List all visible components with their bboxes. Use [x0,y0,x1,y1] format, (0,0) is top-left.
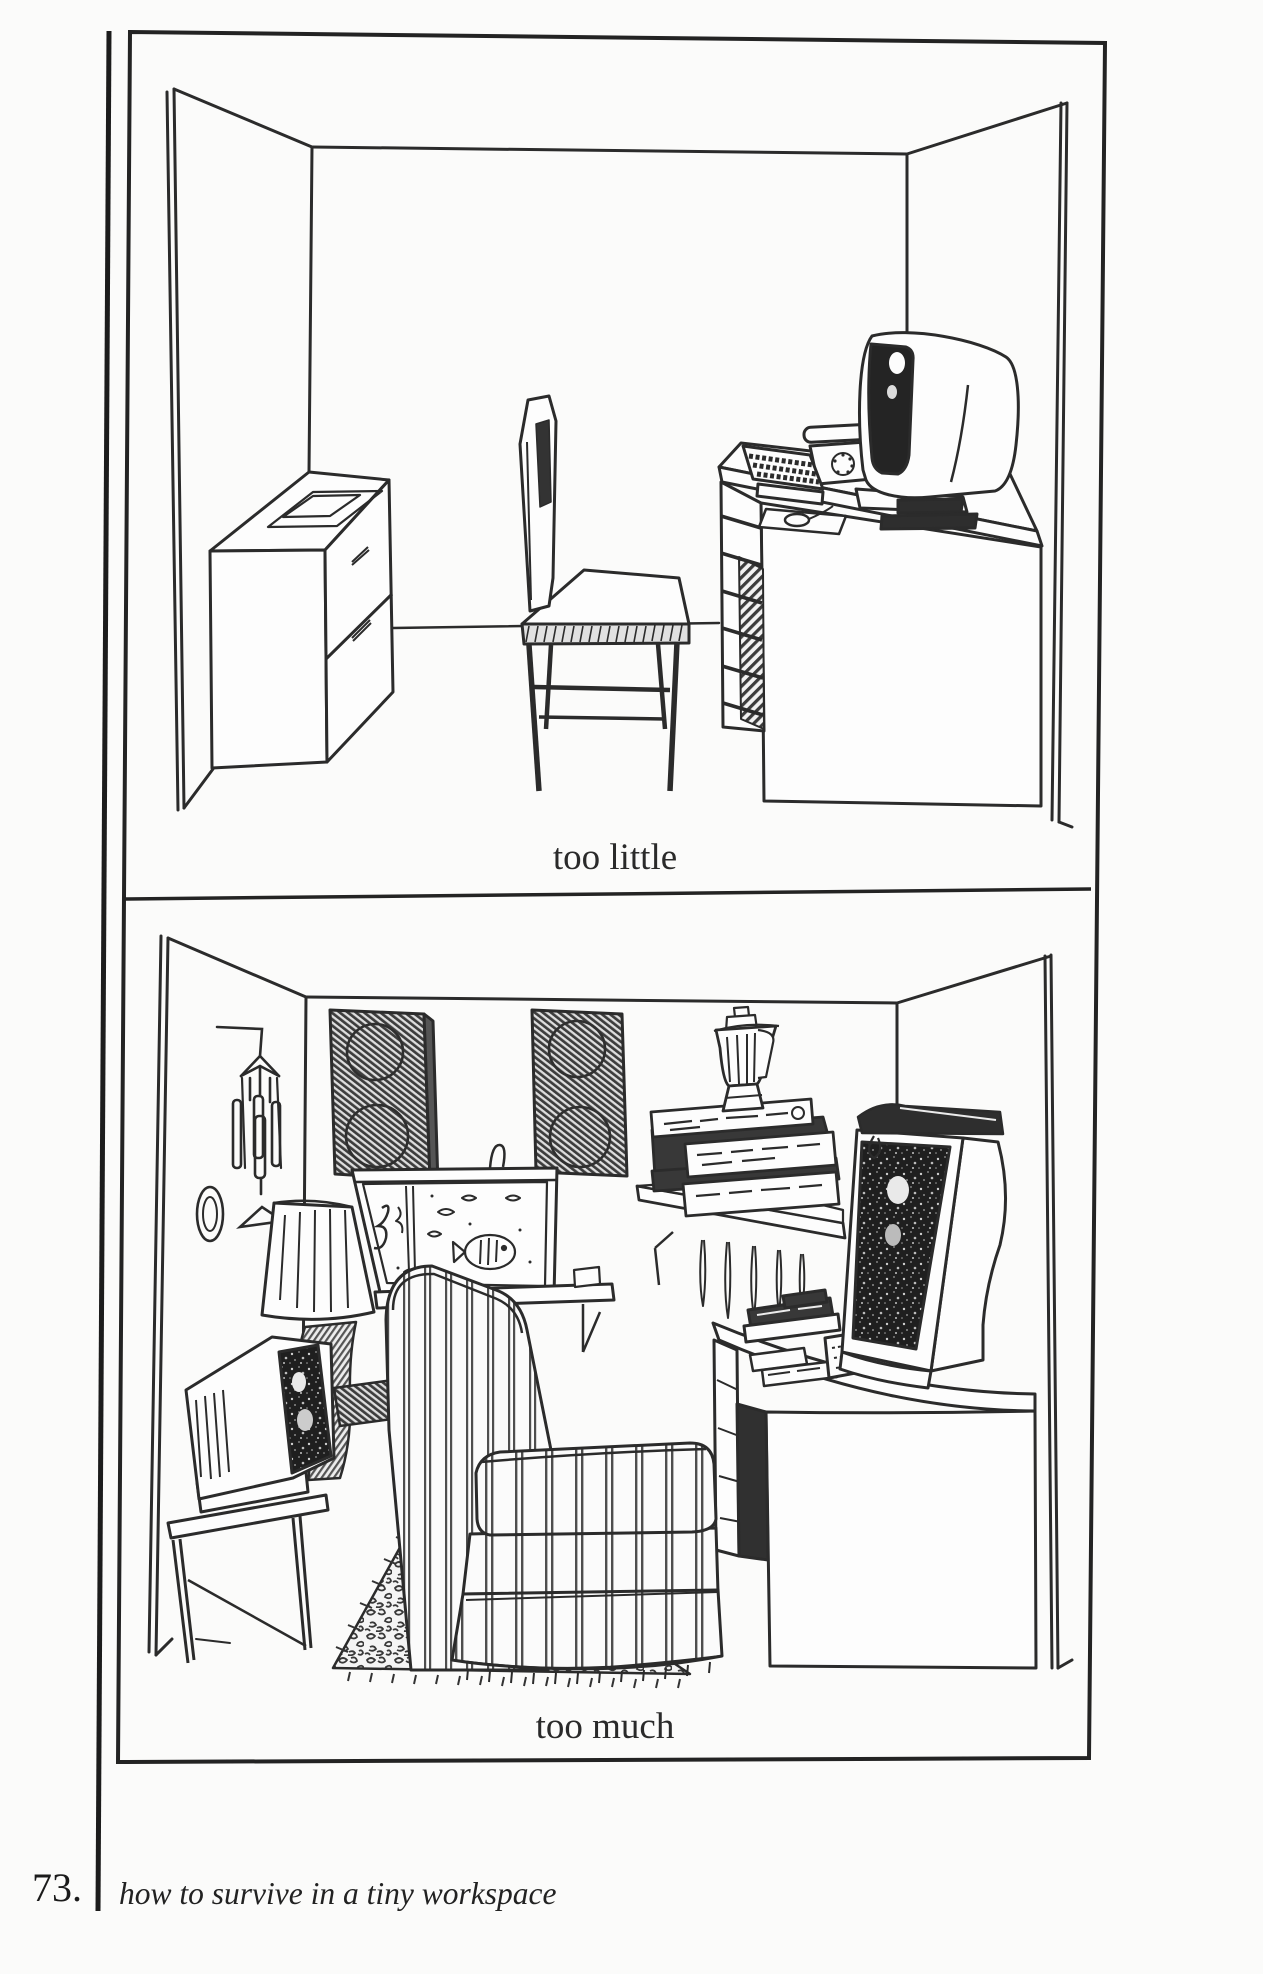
svg-text:too much: too much [536,1706,675,1747]
svg-text:how to survive in a tiny works: how to survive in a tiny workspace [119,1876,556,1911]
svg-text:too little: too little [553,837,677,878]
svg-text:73.: 73. [32,1865,82,1910]
